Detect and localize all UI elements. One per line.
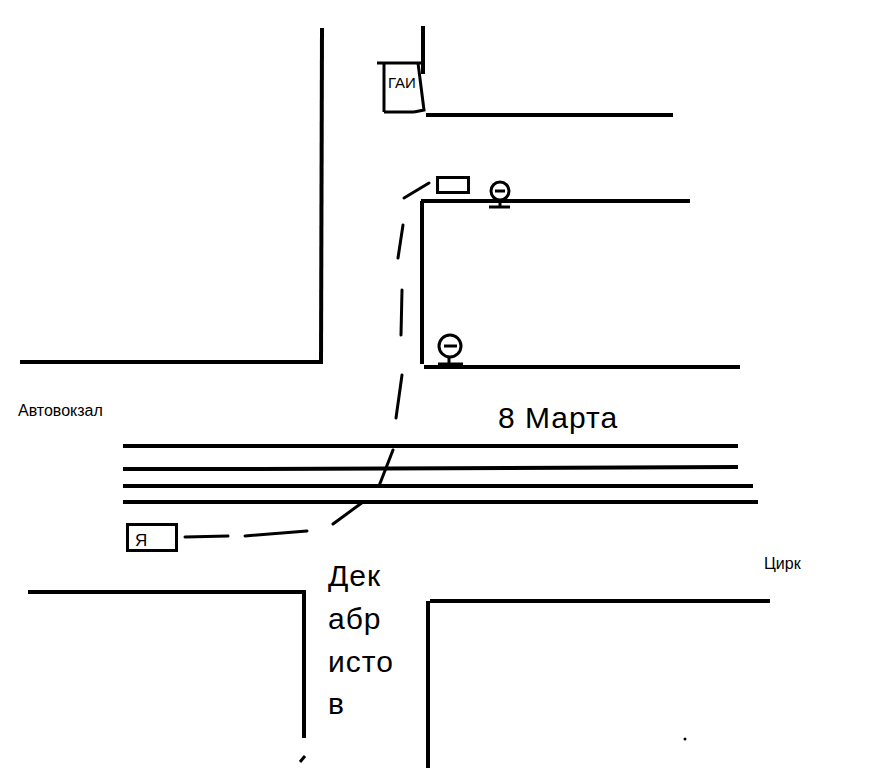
route-dash-3 [333,502,363,524]
gai-post-box: ГАИ [377,63,424,112]
paint-canvas: ГАИ [0,0,875,768]
dekabristov-line-2: абр [328,602,382,635]
stop-rectangle-icon [438,178,469,193]
route-dash-6 [401,290,402,335]
me-label: Я [135,531,147,550]
round-traffic-sign-icon-lower [438,335,463,364]
route-dash-2 [245,531,307,536]
stray-dot [684,738,687,741]
dekabristov-street-label: Дек абр исто в [328,559,394,720]
me-marker-box: Я [128,525,177,551]
marta-street-tracks [123,446,758,502]
stray-mark [300,756,305,762]
marta-street-label: 8 Марта [498,401,618,434]
dekabristov-line-4: в [328,687,345,720]
street-lines [20,26,770,768]
round-traffic-sign-icon-upper [489,182,510,207]
track-line-2 [123,467,738,469]
dekabristov-line-3: исто [328,645,394,678]
dekabristov-line-1: Дек [328,559,381,592]
route-dash-7 [398,225,403,258]
route-dash-8 [404,183,429,198]
route-dash-5 [396,375,402,418]
circus-label: Цирк [764,555,802,572]
bus-station-label: Автовокзал [18,402,103,419]
route-dash-1 [185,536,228,537]
street-avtovokzal-vertical [321,28,322,364]
gai-label: ГАИ [388,74,416,91]
